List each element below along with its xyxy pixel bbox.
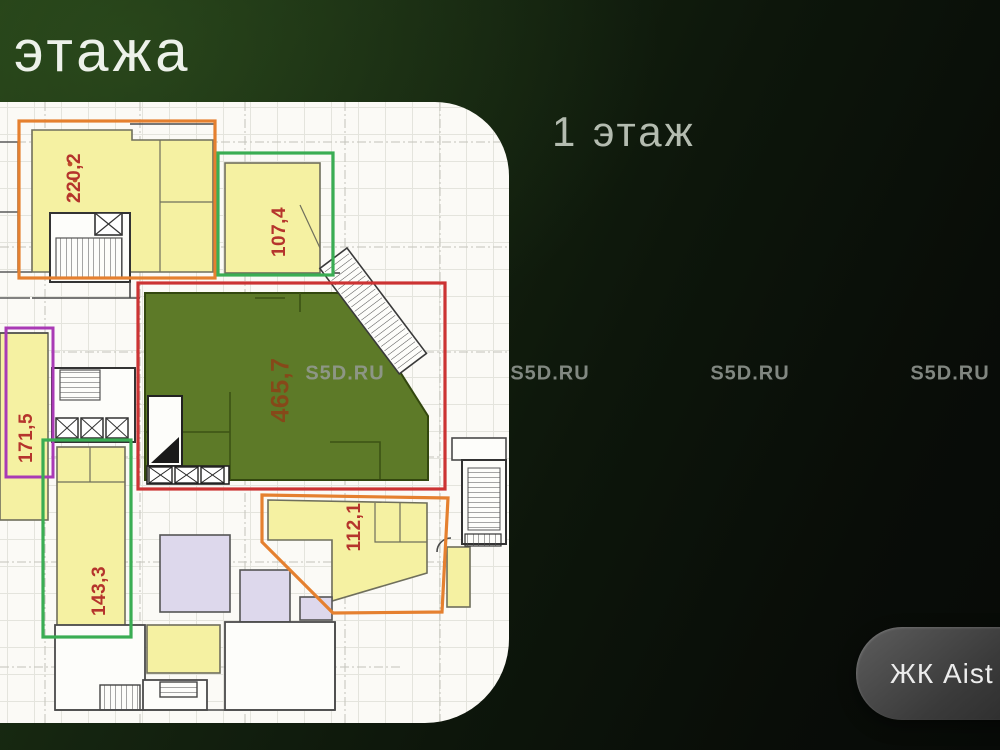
watermark-2: S5D.RU [510, 363, 589, 386]
area-label-171: 171,5 [16, 413, 38, 463]
area-label-143: 143,3 [89, 566, 111, 616]
slide-title: этажа [14, 18, 192, 85]
area-label-107: 107,4 [269, 207, 291, 257]
bottom-stair-block [100, 685, 140, 710]
project-pill-label: ЖК Aist [856, 658, 994, 690]
stairwell-right [452, 438, 506, 546]
bottom-stair-block-2 [160, 682, 197, 697]
lavender-rooms [160, 535, 332, 622]
stair-core-top [50, 213, 130, 282]
watermark-4: S5D.RU [910, 363, 989, 386]
area-label-112: 112,1 [344, 503, 366, 552]
area-label-465: 465,7 [267, 357, 296, 422]
watermark-1: S5D.RU [305, 363, 384, 386]
stair-core-left [52, 368, 135, 442]
project-pill-button[interactable]: ЖК Aist [856, 627, 1000, 720]
slide-canvas: этажа 1 этаж [0, 0, 1000, 750]
floorplan-panel: 220,2 107,4 171,5 465,7 143,3 112,1 [0, 102, 509, 723]
area-label-220: 220,2 [64, 153, 86, 203]
floor-heading: 1 этаж [552, 108, 696, 156]
watermark-3: S5D.RU [710, 363, 789, 386]
